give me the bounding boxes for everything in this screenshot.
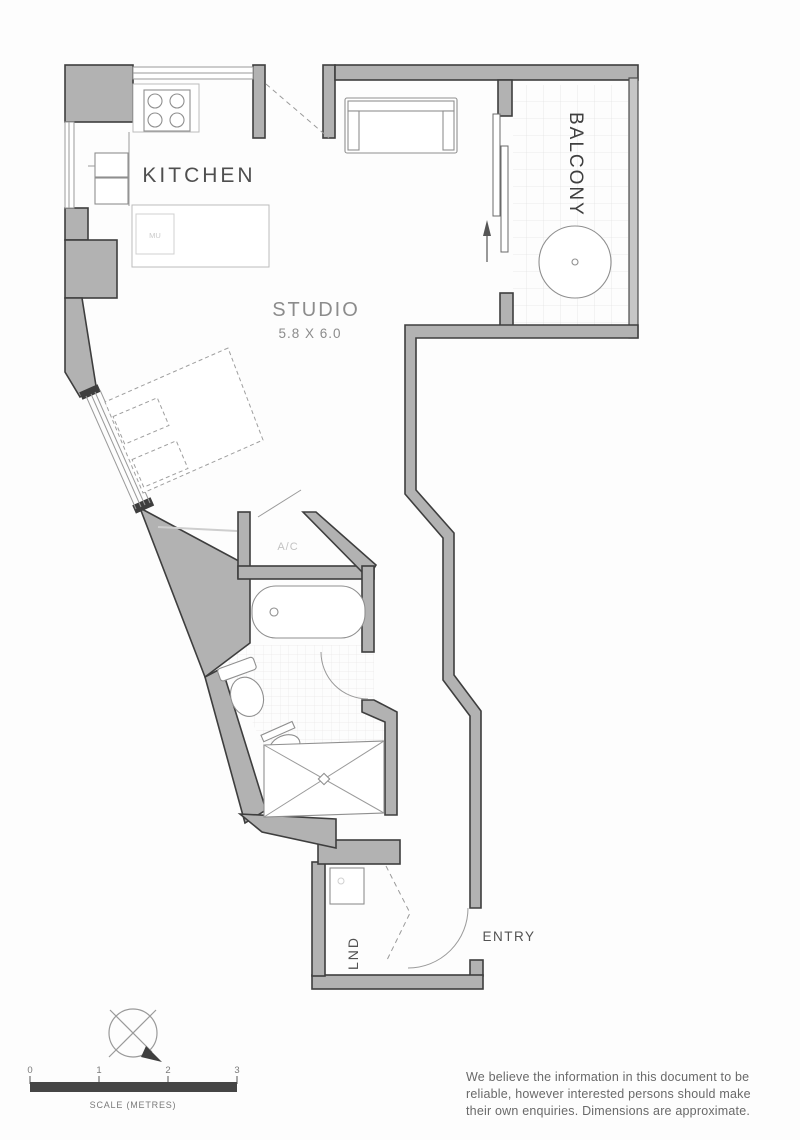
scale-label: SCALE (METRES) xyxy=(90,1100,177,1110)
kitchen-window xyxy=(133,67,253,79)
entry-label: ENTRY xyxy=(482,929,535,944)
bed xyxy=(105,348,263,493)
shower xyxy=(264,741,384,817)
balcony-label: BALCONY xyxy=(565,112,586,217)
disclaimer: We believe the information in this docum… xyxy=(466,1070,751,1118)
bathtub xyxy=(252,586,365,638)
kitchen-label: KITCHEN xyxy=(142,164,255,187)
floorplan-svg: MU xyxy=(0,0,800,1140)
left-window xyxy=(65,122,74,208)
sink xyxy=(88,153,128,204)
disclaimer-line-3: their own enquiries. Dimensions are appr… xyxy=(466,1104,750,1118)
sliding-door xyxy=(483,114,508,262)
kitchen-island: MU xyxy=(132,205,269,267)
scale-bar: 0 1 2 3 SCALE (METRES) xyxy=(27,1065,239,1110)
scale-tick-1: 1 xyxy=(96,1065,101,1076)
scale-tick-2: 2 xyxy=(165,1065,170,1076)
entry-door-arc xyxy=(408,908,468,968)
disclaimer-line-2: reliable, however interested persons sho… xyxy=(466,1087,751,1101)
laundry-label: LND xyxy=(345,936,361,970)
ac-door-leaf xyxy=(258,490,301,517)
slide-arrow-icon xyxy=(483,220,491,236)
balcony-table xyxy=(539,226,611,298)
stove xyxy=(144,90,190,131)
studio-dimensions: 5.8 X 6.0 xyxy=(278,326,341,341)
laundry-bifold-door xyxy=(386,866,410,960)
scale-tick-0: 0 xyxy=(27,1065,32,1076)
balcony-railing xyxy=(629,78,638,338)
kitchen-door-leaf xyxy=(266,84,329,138)
ac-label: A/C xyxy=(277,541,298,553)
disclaimer-line-1: We believe the information in this docum… xyxy=(466,1070,749,1084)
washing-machine xyxy=(330,868,364,904)
sofa xyxy=(345,98,457,153)
floorplan-page: MU xyxy=(0,0,800,1140)
compass-icon xyxy=(109,1009,162,1062)
microwave-label: MU xyxy=(149,231,161,240)
studio-label: STUDIO xyxy=(272,299,360,321)
scale-tick-3: 3 xyxy=(234,1065,239,1076)
